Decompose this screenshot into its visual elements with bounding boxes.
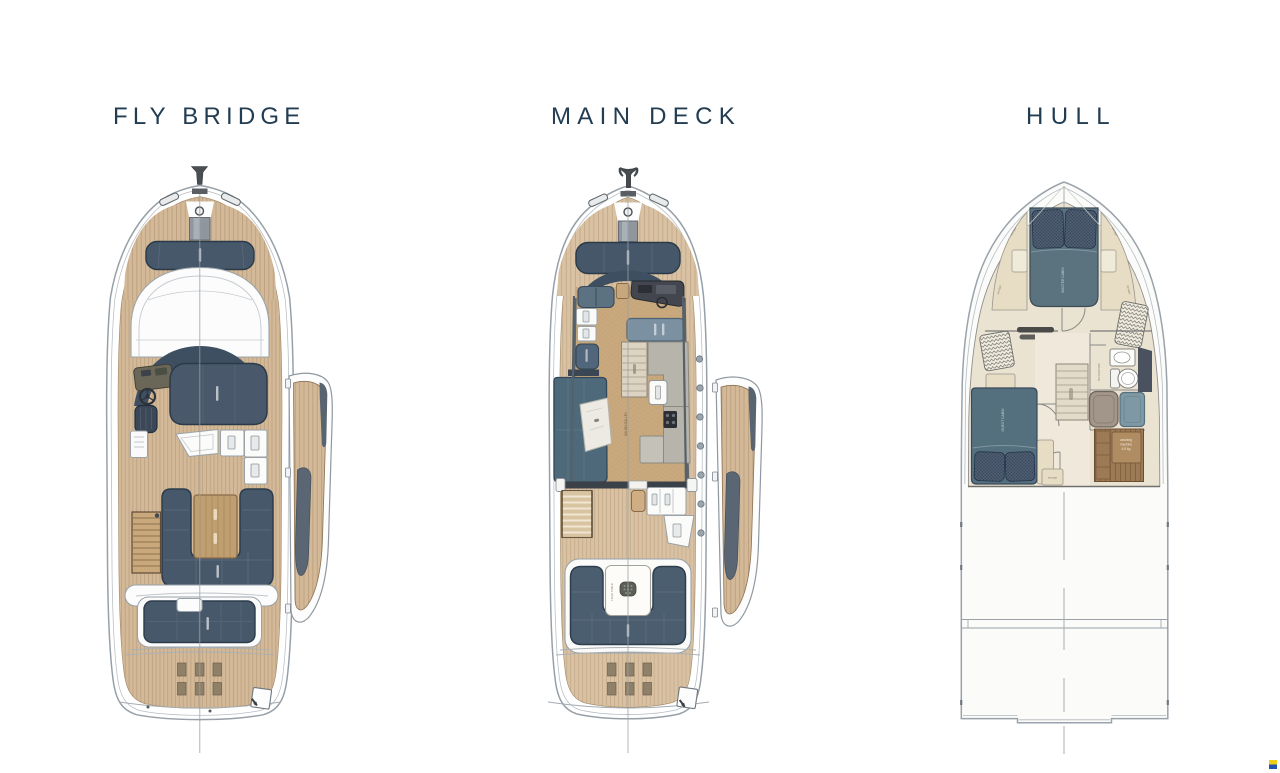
svg-text:washing: washing xyxy=(1120,438,1132,442)
svg-text:TEAK TABLE: TEAK TABLE xyxy=(610,583,614,601)
svg-text:MASTER CABIN: MASTER CABIN xyxy=(1061,267,1065,293)
svg-text:SALON GALLEY: SALON GALLEY xyxy=(624,411,628,436)
svg-text:GUEST CABIN: GUEST CABIN xyxy=(1001,408,1005,431)
svg-text:BATHROOM: BATHROOM xyxy=(1097,363,1101,381)
svg-text:6.5 kg: 6.5 kg xyxy=(1122,447,1131,451)
svg-text:machine: machine xyxy=(1120,443,1132,447)
svg-text:storage: storage xyxy=(1048,476,1058,480)
